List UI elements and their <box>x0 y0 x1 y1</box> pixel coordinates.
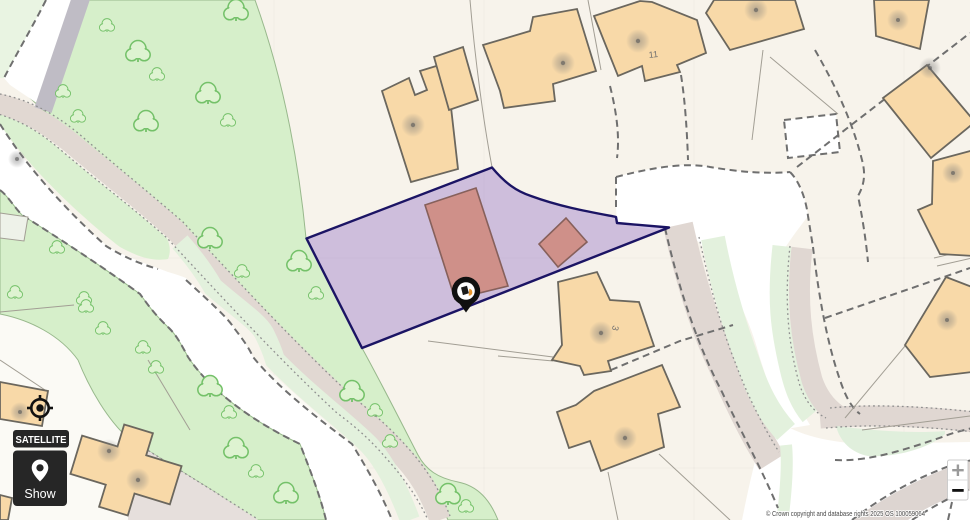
svg-text:Show: Show <box>24 487 56 501</box>
svg-text:SATELLITE: SATELLITE <box>16 434 67 446</box>
svg-text:11: 11 <box>648 49 658 60</box>
svg-text:© Crown copyright and database: © Crown copyright and database rights 20… <box>766 509 925 518</box>
